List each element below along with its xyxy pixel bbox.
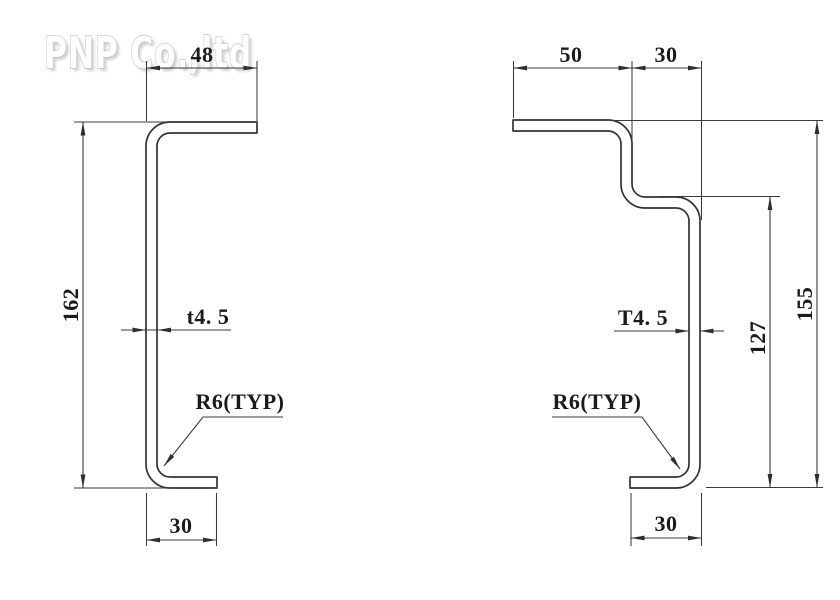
arrowhead-left-icon bbox=[514, 66, 528, 71]
dim-label-height: 162 bbox=[58, 288, 83, 323]
dim-label-top-width: 48 bbox=[191, 42, 214, 67]
arrowhead-icon bbox=[670, 457, 680, 469]
leader-line bbox=[164, 417, 283, 466]
dim-label-top-flange-width: 50 bbox=[560, 42, 583, 67]
dim-right-inner-height: 127 bbox=[660, 197, 780, 488]
leader-line bbox=[552, 417, 680, 469]
arrowhead-down-icon bbox=[815, 474, 820, 488]
dim-label-thickness: t4. 5 bbox=[187, 304, 230, 329]
arrowhead-right-icon bbox=[203, 538, 217, 543]
arrowhead-left-icon bbox=[631, 536, 645, 541]
dim-label-overall-height: 155 bbox=[792, 287, 817, 322]
dim-right-top-flange-width: 50 bbox=[514, 42, 633, 152]
dim-label-bottom-width: 30 bbox=[170, 513, 193, 538]
dim-left-thickness: t4. 5 bbox=[121, 304, 231, 332]
arrowhead-down-icon bbox=[81, 475, 86, 489]
arrowhead-icon bbox=[164, 454, 174, 466]
arrowhead-right-icon bbox=[688, 536, 702, 541]
arrowhead-up-icon bbox=[81, 122, 86, 136]
dim-label-inner-height: 127 bbox=[745, 321, 770, 356]
arrowhead-down-icon bbox=[768, 474, 773, 488]
dim-left-height: 162 bbox=[58, 122, 168, 488]
arrowhead-right-icon bbox=[688, 66, 702, 71]
dim-left-bottom-width: 30 bbox=[147, 493, 217, 546]
dim-label-bend-radius: R6(TYP) bbox=[552, 389, 641, 414]
right-profile bbox=[513, 120, 700, 488]
dim-label-bottom-width: 30 bbox=[655, 511, 678, 536]
arrowhead-up-icon bbox=[768, 197, 773, 211]
arrowhead-left-icon bbox=[632, 66, 646, 71]
leader-left-bend-radius: R6(TYP) bbox=[164, 389, 285, 466]
technical-drawing-canvas: PNP Co.,ltd PNP Co.,ltd 48 162 t4. 5 R6(… bbox=[0, 0, 840, 600]
watermark-text: PNP Co.,ltd bbox=[44, 28, 252, 79]
dim-label-step-width: 30 bbox=[655, 42, 678, 67]
right-profile-outline bbox=[513, 120, 700, 488]
arrowhead-left-icon bbox=[158, 328, 172, 333]
arrowhead-left-icon bbox=[700, 329, 714, 334]
dim-right-step-width: 30 bbox=[632, 42, 702, 220]
arrowhead-up-icon bbox=[815, 121, 820, 135]
dim-label-bend-radius: R6(TYP) bbox=[195, 389, 284, 414]
dim-right-bottom-width: 30 bbox=[631, 493, 702, 546]
dim-right-overall-height: 155 bbox=[610, 121, 823, 488]
dim-right-thickness: T4. 5 bbox=[614, 305, 724, 333]
drawing-svg: PNP Co.,ltd PNP Co.,ltd 48 162 t4. 5 R6(… bbox=[0, 0, 840, 600]
arrowhead-right-icon bbox=[619, 66, 633, 71]
leader-right-bend-radius: R6(TYP) bbox=[552, 389, 680, 469]
arrowhead-left-icon bbox=[147, 538, 161, 543]
arrowhead-right-icon bbox=[676, 329, 690, 334]
watermark: PNP Co.,ltd PNP Co.,ltd bbox=[44, 28, 255, 82]
arrowhead-right-icon bbox=[133, 328, 147, 333]
dim-label-thickness: T4. 5 bbox=[618, 305, 668, 330]
